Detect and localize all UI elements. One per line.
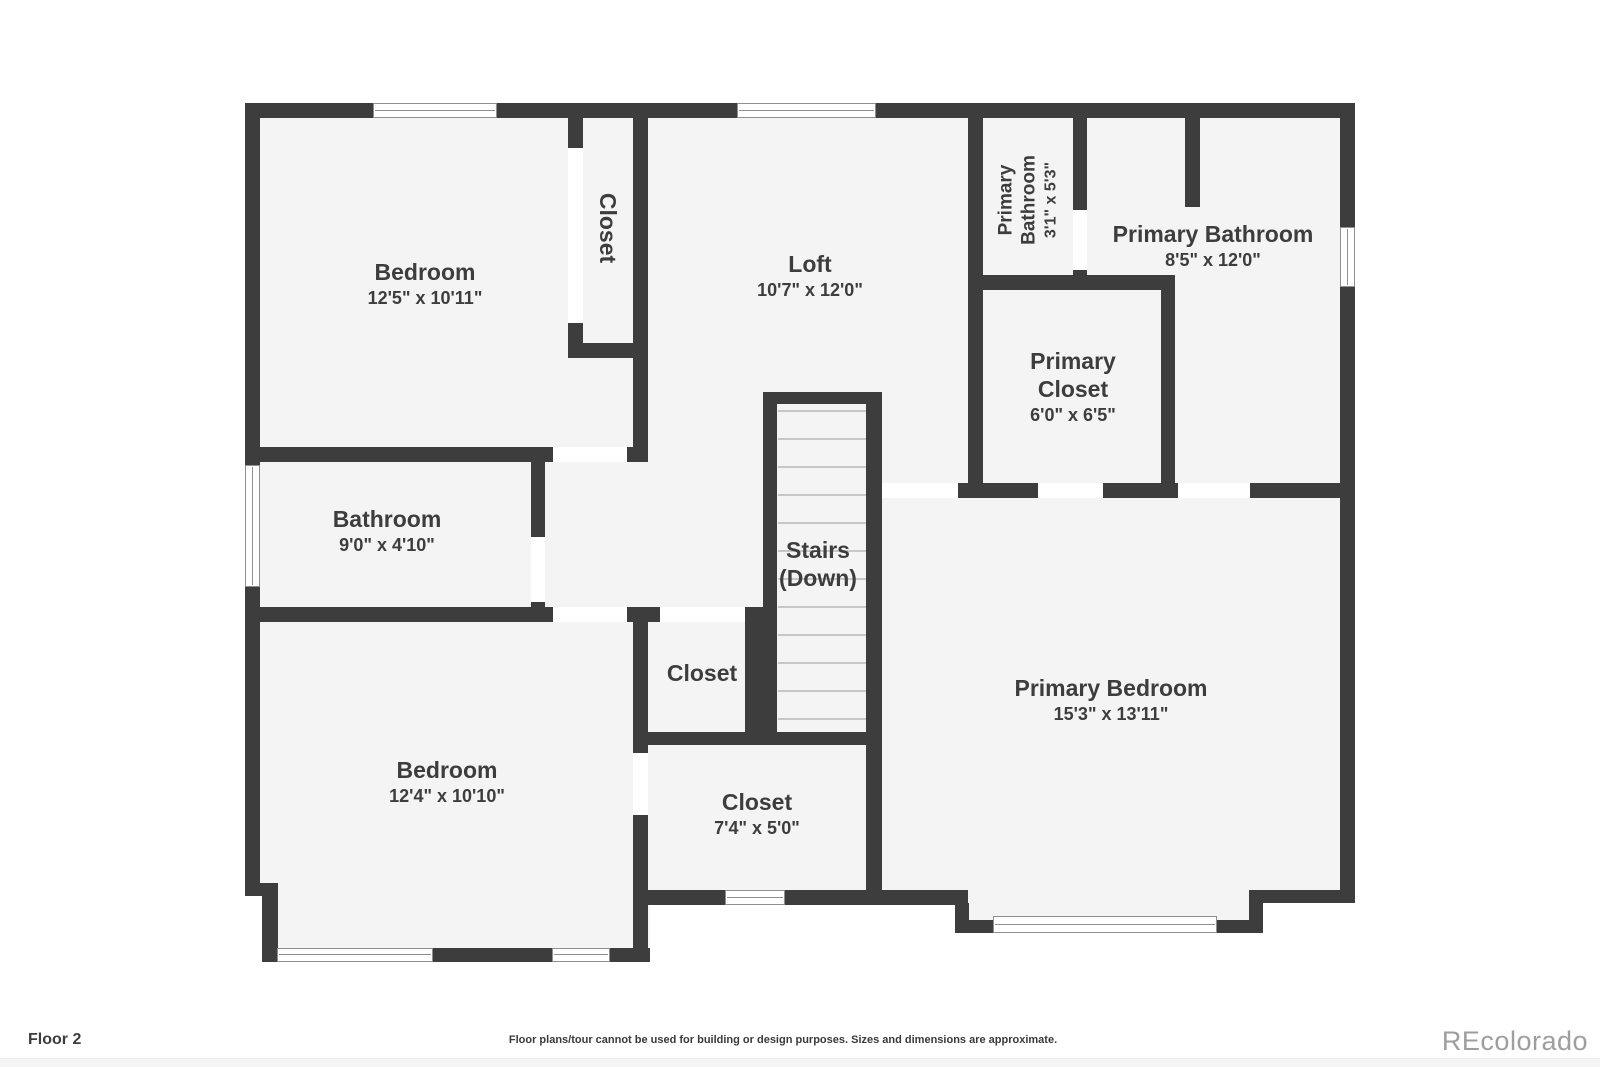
stair-tread (778, 662, 866, 664)
door-opening-bathroom (531, 537, 545, 602)
door-opening-closet-center (660, 607, 745, 622)
room-name: Bathroom (333, 505, 442, 533)
wall-primary-bath-stub (1185, 118, 1200, 207)
room-dims: 10'7" x 12'0" (757, 278, 863, 302)
room-name: Closet (714, 788, 800, 816)
floor-plan: Bedroom 12'5" x 10'11" Closet Loft 10'7"… (0, 0, 1600, 1066)
room-label-closet-bottom: Closet 7'4" x 5'0" (714, 788, 800, 840)
room-label-primary-bedroom: Primary Bedroom 15'3" x 13'11" (1014, 674, 1207, 726)
door-opening-closet-bottom (633, 753, 648, 815)
room-label-loft: Loft 10'7" x 12'0" (757, 250, 863, 302)
wall-primary-closet-right (1161, 275, 1175, 498)
room-name: Stairs (779, 536, 857, 564)
wall-stairs-top (763, 392, 878, 404)
room-dims: 12'4" x 10'10" (389, 784, 505, 808)
room-name-sub: (Down) (779, 564, 857, 592)
room-label-bedroom-bottom-left: Bedroom 12'4" x 10'10" (389, 756, 505, 808)
wall-stairs-left (763, 392, 777, 745)
room-dims: 6'0" x 6'5" (1003, 403, 1143, 427)
wall-exterior-closet-bottom (633, 890, 968, 905)
room-dims: 7'4" x 5'0" (714, 816, 800, 840)
room-dims: 12'5" x 10'11" (368, 286, 483, 310)
stair-tread (778, 494, 866, 496)
room-dims: 3'1" x 5'3" (1041, 144, 1062, 256)
door-opening-bedroom1-hall (553, 447, 627, 462)
stair-tread (778, 438, 866, 440)
wall-loft-left (633, 118, 648, 462)
room-label-bathroom: Bathroom 9'0" x 4'10" (333, 505, 442, 557)
room-label-primary-bathroom-small: Primary Bathroom 3'1" x 5'3" (995, 144, 1062, 256)
stair-tread (778, 606, 866, 608)
room-name: Primary Closet (1003, 347, 1143, 403)
room-name: Bedroom (368, 258, 483, 286)
stair-tread (778, 522, 866, 524)
floor-label: Floor 2 (28, 1031, 81, 1049)
stair-tread (778, 466, 866, 468)
window-bottom-bedroom2-a (277, 948, 433, 962)
room-label-primary-closet: Primary Closet 6'0" x 6'5" (1003, 347, 1143, 427)
window-top-bedroom (373, 103, 497, 118)
wall-closet-center-right (745, 622, 763, 732)
wall-primary-closet-top (968, 275, 1175, 290)
room-dims: 9'0" x 4'10" (333, 533, 442, 557)
room-name: Closet (667, 659, 737, 687)
room-dims: 15'3" x 13'11" (1014, 702, 1207, 726)
room-name: Closet (594, 193, 622, 263)
room-name: Primary Bedroom (1014, 674, 1207, 702)
stair-tread (778, 410, 866, 412)
door-opening-hall-bedroom2 (553, 607, 627, 622)
wall-exterior-right (1340, 103, 1355, 903)
room-name: Primary Bathroom (995, 144, 1041, 256)
room-label-primary-bathroom: Primary Bathroom 8'5" x 12'0" (1113, 220, 1314, 272)
wall-stairs-right (866, 392, 882, 905)
window-bottom-bedroom2-b (552, 948, 610, 962)
room-label-closet-center: Closet (667, 659, 737, 687)
room-name: Primary Bathroom (1113, 220, 1314, 248)
stair-tread (778, 718, 866, 720)
stair-tread (778, 690, 866, 692)
room-label-closet-top-left: Closet (594, 193, 622, 263)
window-closet-bottom (725, 890, 785, 905)
room-label-bedroom-top-left: Bedroom 12'5" x 10'11" (368, 258, 483, 310)
window-bay-primary-bedroom (993, 916, 1217, 933)
exterior-mask (245, 896, 262, 966)
window-top-loft (737, 103, 876, 118)
wall-stairs-bottom (633, 732, 882, 745)
door-opening-primary-bedroom (882, 483, 958, 498)
room-dims: 8'5" x 12'0" (1113, 248, 1314, 272)
stair-tread (778, 634, 866, 636)
wall-bay-right (1249, 903, 1263, 924)
room-name: Bedroom (389, 756, 505, 784)
footer-disclaimer: Floor plans/tour cannot be used for buil… (509, 1034, 1057, 1046)
window-right-primary-bath (1340, 227, 1355, 287)
wall-loft-right (968, 118, 983, 498)
door-opening-primary-closet (1038, 483, 1103, 498)
door-opening-primary-bath-small (1073, 210, 1087, 270)
door-opening-closet-tl (568, 148, 583, 323)
window-left-bathroom (245, 465, 260, 587)
room-label-stairs: Stairs (Down) (779, 536, 857, 592)
brand-logo: REcolorado (1442, 1026, 1588, 1057)
door-opening-primary-bathroom (1178, 483, 1250, 498)
room-name: Loft (757, 250, 863, 278)
